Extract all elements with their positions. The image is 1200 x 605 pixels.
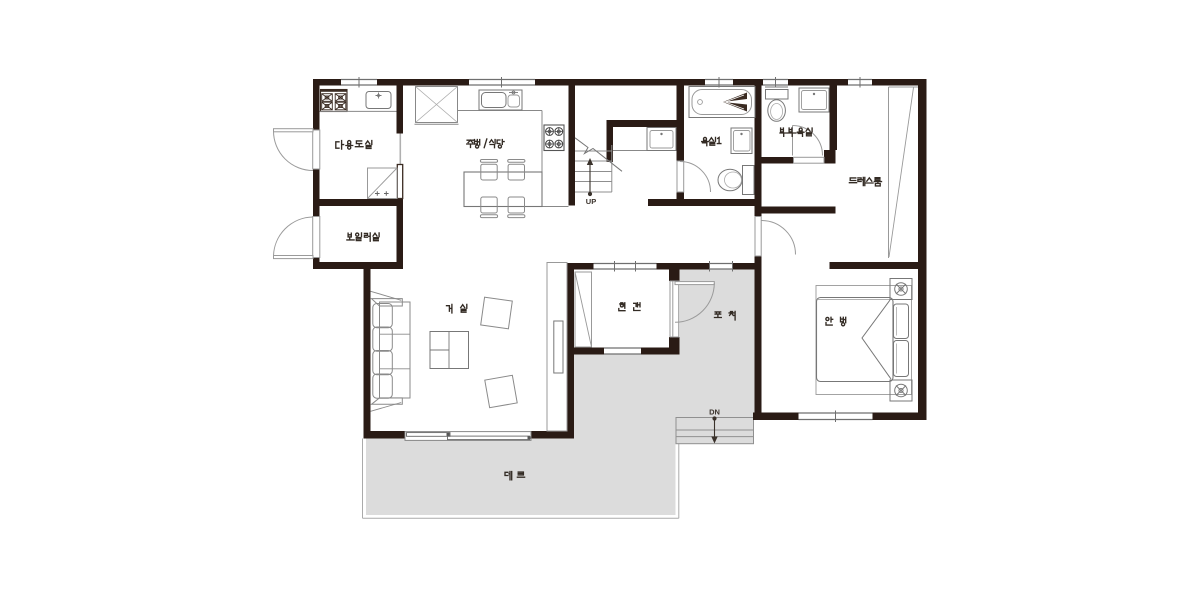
svg-text:UP: UP	[586, 197, 596, 206]
svg-text:DN: DN	[709, 408, 720, 417]
